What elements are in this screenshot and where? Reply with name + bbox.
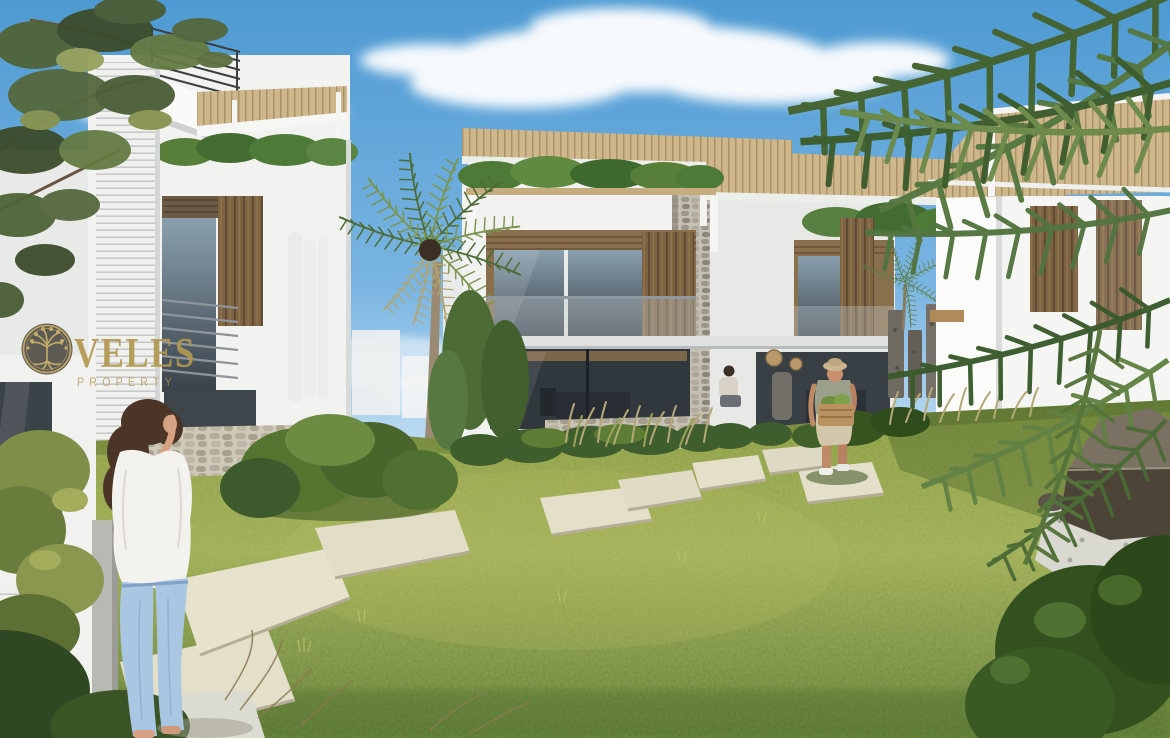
wood-beam-accent — [930, 310, 964, 322]
man-shoe — [819, 468, 833, 475]
brand-name: VELES — [74, 331, 196, 377]
upper-window-left-wing — [486, 230, 696, 338]
pendant-lamp — [766, 350, 782, 366]
woman-foot — [133, 730, 155, 738]
man-shadow — [806, 469, 868, 485]
roof-planter — [466, 188, 716, 195]
balustrade-rail — [486, 296, 696, 299]
man-shoe — [836, 464, 850, 471]
pendant-lamp — [790, 358, 802, 370]
palm-crown — [419, 239, 441, 261]
man-hat-crown — [828, 358, 842, 366]
curtain — [288, 232, 328, 402]
brand-logo-tree-in-circle-icon — [22, 324, 73, 375]
brand-subtitle: PROPERTY — [77, 375, 177, 389]
villa-render-image: VELES PROPERTY — [0, 0, 1170, 738]
wood-slat-panel — [1030, 206, 1078, 312]
render-canvas: VELES PROPERTY — [0, 0, 1170, 738]
floor-slab-shadow — [462, 346, 895, 349]
woman-foot — [161, 726, 181, 734]
man-leg — [822, 442, 831, 470]
interior-standing-person — [772, 372, 792, 420]
produce-basket — [818, 394, 854, 426]
